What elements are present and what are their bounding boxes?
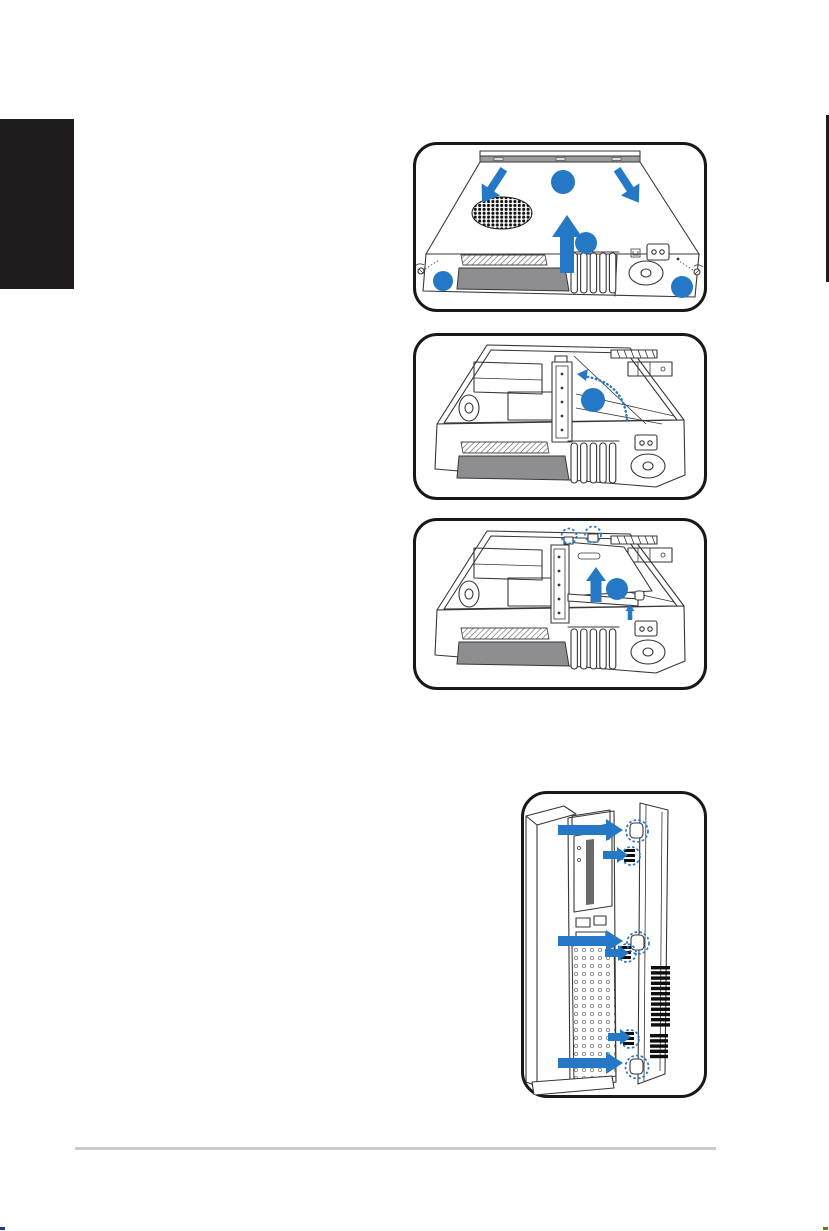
rear-rail [611,536,657,544]
step-badge [581,388,605,412]
step-badge [575,232,597,254]
chapter-tab-left [0,119,74,289]
expansion-slots [568,441,619,483]
figure-lift-riser-rail [413,518,707,690]
step-badge [433,271,453,291]
print-registration-mark [823,1227,828,1230]
rear-rail [611,350,657,358]
footer-divider [75,1147,716,1150]
print-registration-mark [0,1227,5,1230]
expansion-slots [568,252,619,293]
riser-bracket [552,356,572,442]
step-badge [606,578,628,600]
figure-remove-top-cover [413,142,707,312]
figure-remove-front-bezel [521,791,707,1098]
front-bezel-illustration [524,794,704,1095]
bezel-tab [630,1059,643,1074]
bezel-tab [630,823,643,838]
drive-bezel [457,268,569,291]
fan-grille [472,197,532,229]
drive-bezel [457,456,569,480]
riser-bracket [551,545,569,623]
chassis-line-art [435,345,685,487]
chassis-line-art [435,531,685,673]
bezel-tab [631,935,644,950]
drive-bezel [457,642,569,666]
expansion-slots [568,627,619,669]
step-badge [671,276,693,298]
manual-page [0,0,829,1231]
chassis-line-art [526,806,616,1095]
step-badge [551,170,575,194]
open-chassis-illustration [416,336,704,497]
top-cover-illustration [416,145,704,309]
open-chassis-illustration [416,521,704,687]
figure-rotate-riser-bracket [413,333,707,500]
